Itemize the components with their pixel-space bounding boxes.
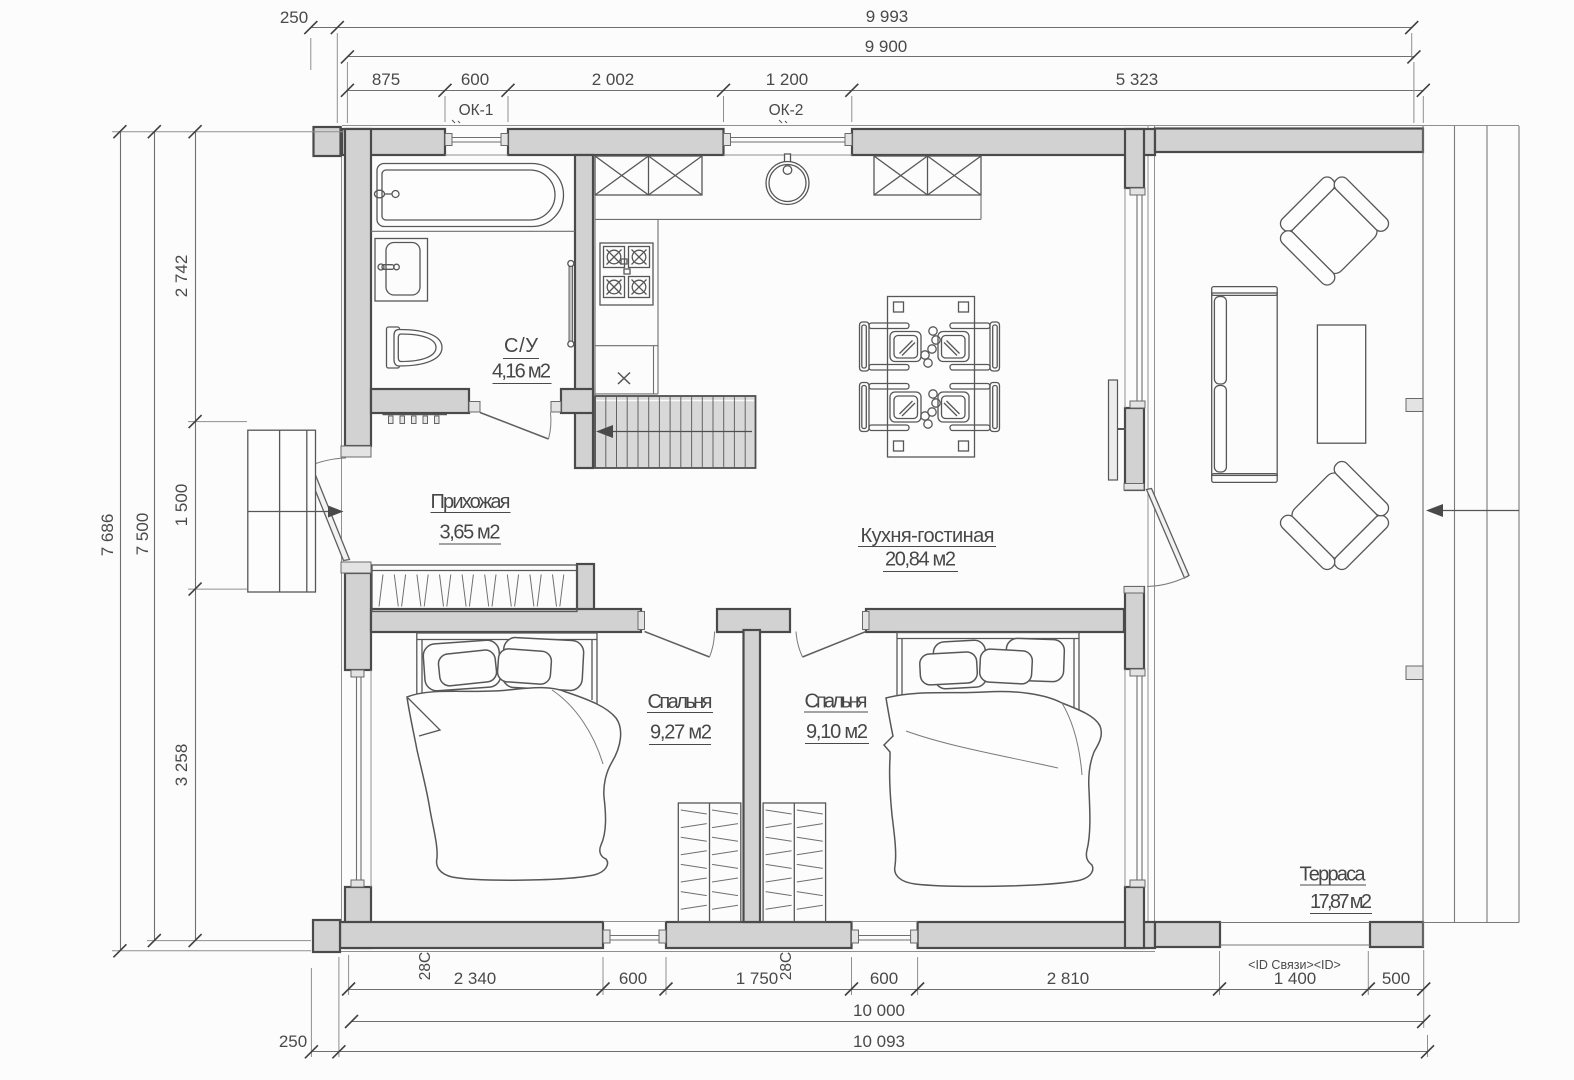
svg-text:2 340: 2 340	[454, 969, 497, 988]
svg-text:250: 250	[280, 8, 308, 27]
svg-text:1 200: 1 200	[766, 70, 809, 89]
svg-text:3,65 м2: 3,65 м2	[440, 522, 501, 544]
svg-text:2 002: 2 002	[592, 70, 635, 89]
svg-text:Терраса: Терраса	[1300, 864, 1367, 886]
svg-text:9,10 м2: 9,10 м2	[806, 721, 868, 743]
svg-text:9 993: 9 993	[866, 7, 909, 26]
svg-text:<ID Связи><ID>: <ID Связи><ID>	[1248, 958, 1341, 972]
svg-text:1 750: 1 750	[736, 969, 779, 988]
svg-text:2 810: 2 810	[1047, 969, 1090, 988]
svg-text:2 742: 2 742	[172, 255, 191, 298]
svg-text:28С: 28С	[778, 952, 795, 980]
svg-text:5 323: 5 323	[1116, 70, 1159, 89]
svg-text:9 900: 9 900	[865, 37, 908, 56]
svg-text:600: 600	[870, 969, 898, 988]
svg-text:1 500: 1 500	[172, 484, 191, 527]
svg-text:17,87 м2: 17,87 м2	[1310, 891, 1372, 913]
svg-text:500: 500	[1382, 969, 1410, 988]
svg-text:Спальня: Спальня	[648, 691, 713, 713]
svg-text:С/У: С/У	[504, 335, 538, 357]
svg-text:ОК-1: ОК-1	[459, 102, 494, 119]
svg-text:Кухня-гостиная: Кухня-гостиная	[861, 525, 995, 547]
svg-text:Спальня: Спальня	[805, 691, 868, 713]
svg-text:4,16 м2: 4,16 м2	[492, 361, 551, 383]
svg-text:ОК-2: ОК-2	[769, 102, 804, 119]
svg-text:28С: 28С	[417, 952, 434, 980]
svg-text:7 500: 7 500	[133, 513, 152, 556]
svg-text:9,27 м2: 9,27 м2	[650, 722, 712, 744]
svg-text:Прихожая: Прихожая	[431, 491, 511, 513]
svg-text:3 258: 3 258	[172, 744, 191, 787]
svg-text:600: 600	[619, 969, 647, 988]
svg-text:250: 250	[279, 1032, 307, 1051]
svg-text:10 000: 10 000	[853, 1001, 905, 1020]
svg-text:875: 875	[372, 70, 400, 89]
svg-text:7 686: 7 686	[98, 514, 117, 557]
svg-text:10 093: 10 093	[853, 1032, 905, 1051]
svg-text:20,84 м2: 20,84 м2	[885, 549, 956, 571]
svg-text:600: 600	[461, 70, 489, 89]
